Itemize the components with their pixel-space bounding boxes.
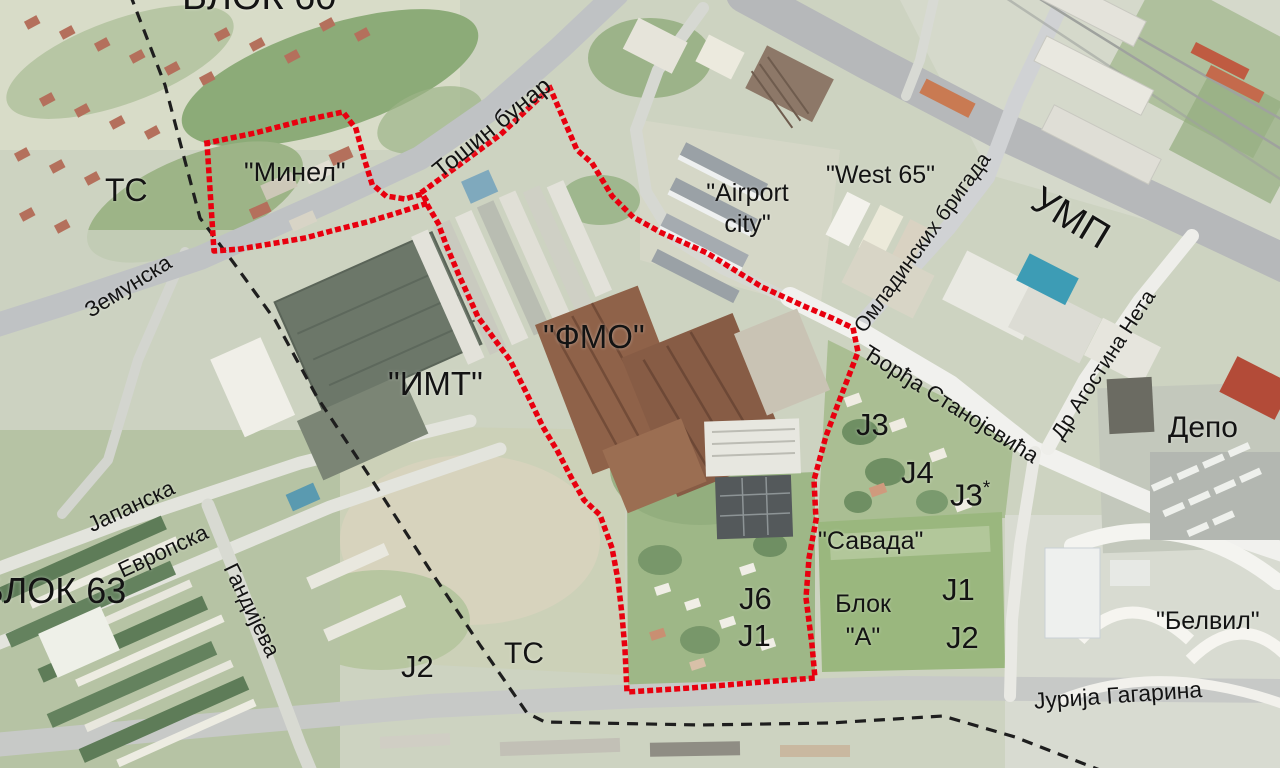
label-j2-west: Ј2 <box>401 651 434 684</box>
label-j3-star: Ј3* <box>950 479 990 512</box>
label-blok-a-line1: Блок <box>835 588 891 621</box>
label-blok63: БЛОК 63 <box>0 572 126 610</box>
label-ts-upper: ТС <box>105 174 148 208</box>
label-imt: "ИМТ" <box>388 367 483 402</box>
label-savada: "Савада" <box>818 528 923 554</box>
buildings-retail-parking <box>704 418 801 539</box>
label-ts-lower: ТС <box>504 638 544 670</box>
label-blok-a: Блок "А" <box>818 588 908 653</box>
label-j1-east: Ј1 <box>942 574 975 607</box>
satellite-map: БЛОК 60 ТС "Минел" Тошин бунар Земунска … <box>0 0 1280 768</box>
label-blok-a-line2: "А" <box>846 621 880 654</box>
label-airport-city: "Airport city" <box>690 178 805 239</box>
label-j1-central: Ј1 <box>738 620 771 653</box>
label-j6: Ј6 <box>739 583 772 616</box>
label-j4: Ј4 <box>901 457 934 490</box>
label-j2-east: Ј2 <box>946 622 979 655</box>
label-j3: Ј3 <box>856 409 889 442</box>
label-belvil: "Белвил" <box>1156 608 1260 634</box>
label-blok60: БЛОК 60 <box>182 0 336 18</box>
label-fmo: "ФМО" <box>543 320 645 355</box>
label-j3-star-sup: * <box>983 478 990 499</box>
label-minel: "Минел" <box>244 158 346 186</box>
label-depo: Депо <box>1168 412 1238 444</box>
label-j3-star-base: Ј3 <box>950 477 983 512</box>
label-west65: "West 65" <box>826 162 935 188</box>
buildings-bottom-strip <box>380 733 850 757</box>
